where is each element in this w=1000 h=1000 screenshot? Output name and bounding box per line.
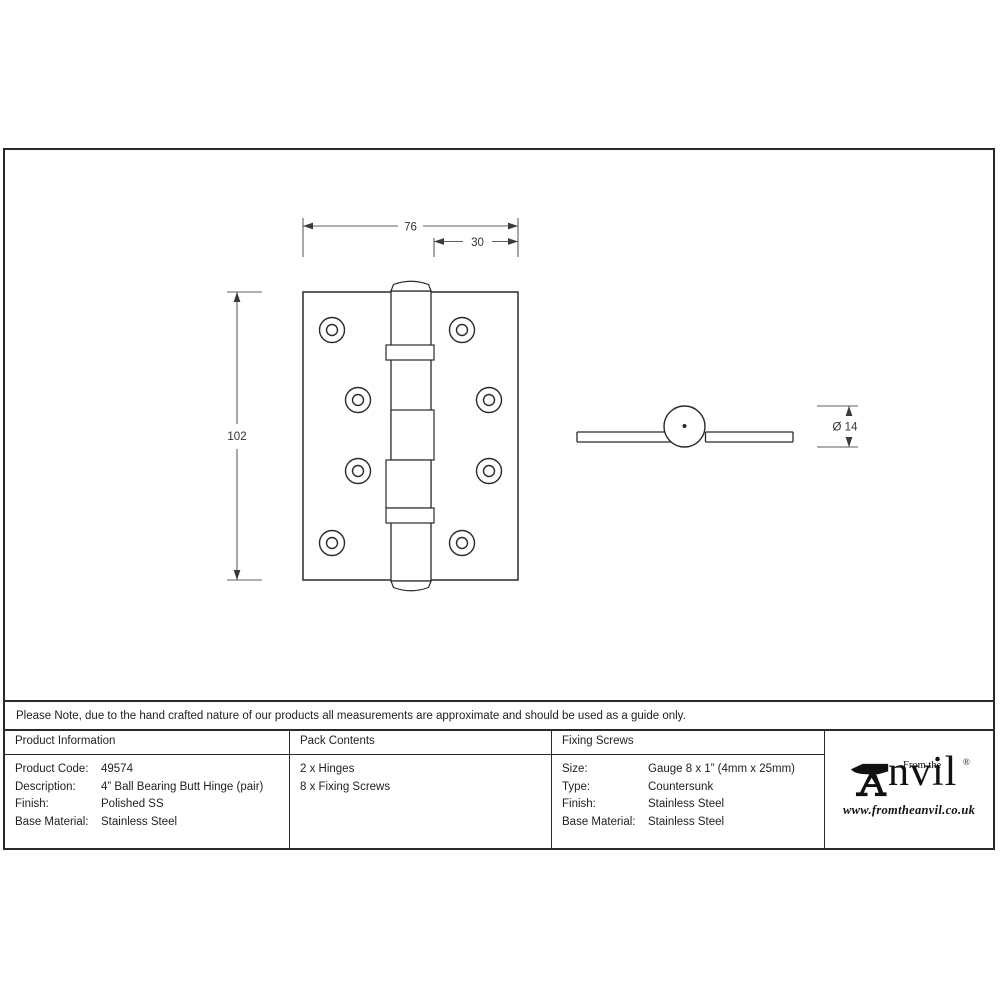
list-item: 2 x Hinges xyxy=(300,761,551,779)
fixing-screws-column: Fixing Screws Size: Gauge 8 x 1” (4mm x … xyxy=(552,731,825,848)
spec-label: Product Code: xyxy=(15,761,101,779)
logo-website: www.fromtheanvil.co.uk xyxy=(843,803,975,818)
table-row: Size: Gauge 8 x 1” (4mm x 25mm) xyxy=(562,761,824,779)
spec-value: 49574 xyxy=(101,761,133,779)
spec-table: Product Information Product Code: 49574 … xyxy=(3,731,995,850)
table-row: Type: Countersunk xyxy=(562,779,824,797)
spec-value: Polished SS xyxy=(101,796,164,814)
registered-trademark-icon: ® xyxy=(963,757,970,767)
list-item: 8 x Fixing Screws xyxy=(300,779,551,797)
spec-value: Stainless Steel xyxy=(101,814,177,832)
table-row: Finish: Stainless Steel xyxy=(562,796,824,814)
product-information-header: Product Information xyxy=(5,731,289,755)
product-information-body: Product Code: 49574 Description: 4” Ball… xyxy=(5,755,289,831)
pack-contents-column: Pack Contents 2 x Hinges 8 x Fixing Scre… xyxy=(290,731,552,848)
brand-logo-cell: From the nvil ® www.fromtheanvil.co.uk xyxy=(825,731,993,848)
pack-contents-body: 2 x Hinges 8 x Fixing Screws xyxy=(290,755,551,796)
spec-label: Type: xyxy=(562,779,648,797)
spec-value: Stainless Steel xyxy=(648,796,724,814)
fixing-screws-body: Size: Gauge 8 x 1” (4mm x 25mm) Type: Co… xyxy=(552,755,824,831)
table-row: Product Code: 49574 xyxy=(15,761,289,779)
spec-label: Finish: xyxy=(15,796,101,814)
spec-value: 4” Ball Bearing Butt Hinge (pair) xyxy=(101,779,263,797)
logo-brand-text: nvil xyxy=(888,749,957,795)
spec-label: Base Material: xyxy=(562,814,648,832)
anvil-icon xyxy=(851,759,889,801)
measurement-note-row: Please Note, due to the hand crafted nat… xyxy=(3,700,995,731)
product-information-column: Product Information Product Code: 49574 … xyxy=(5,731,290,848)
table-row: Base Material: Stainless Steel xyxy=(15,814,289,832)
fixing-screws-header: Fixing Screws xyxy=(552,731,824,755)
spec-label: Description: xyxy=(15,779,101,797)
spec-label: Base Material: xyxy=(15,814,101,832)
pack-contents-header: Pack Contents xyxy=(290,731,551,755)
spec-value: Countersunk xyxy=(648,779,713,797)
spec-value: Stainless Steel xyxy=(648,814,724,832)
table-row: Finish: Polished SS xyxy=(15,796,289,814)
from-the-anvil-logo: From the nvil ® www.fromtheanvil.co.uk xyxy=(843,758,975,818)
table-row: Description: 4” Ball Bearing Butt Hinge … xyxy=(15,779,289,797)
measurement-note-text: Please Note, due to the hand crafted nat… xyxy=(16,710,686,722)
spec-label: Finish: xyxy=(562,796,648,814)
spec-value: Gauge 8 x 1” (4mm x 25mm) xyxy=(648,761,795,779)
table-row: Base Material: Stainless Steel xyxy=(562,814,824,832)
spec-label: Size: xyxy=(562,761,648,779)
